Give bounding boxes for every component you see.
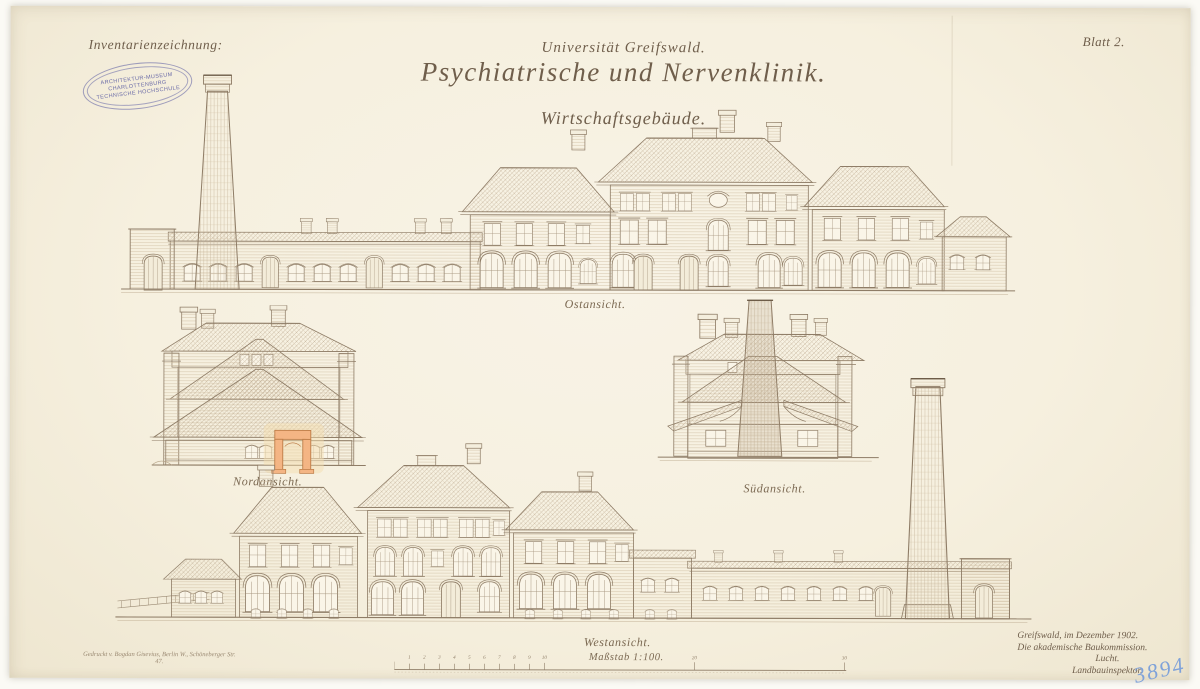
west-tall-chimney	[901, 379, 954, 619]
west-low-wing	[687, 550, 1011, 619]
west-center-block	[353, 443, 513, 617]
caption-ostansicht: Ostansicht.	[530, 297, 660, 312]
east-main-right-wing	[800, 166, 948, 290]
east-main-center-block	[594, 110, 816, 290]
west-right-block	[501, 472, 637, 619]
scale-bar: 1 2 3 4 5 6 7 8 9 10 20 30	[394, 656, 846, 677]
east-main-left-wing	[458, 130, 618, 290]
caption-westansicht: Westansicht.	[547, 635, 687, 650]
east-low-wing	[128, 218, 482, 291]
sheet-number-label: Blatt 2.	[1083, 34, 1173, 50]
commission-line: Die akademische Baukommission.	[1017, 642, 1197, 654]
east-boiler-chimney	[195, 75, 239, 289]
drawing-sheet: Inventarienzeichnung: Blatt 2. ARCHITEKT…	[9, 6, 1190, 680]
west-left-block	[229, 465, 365, 618]
west-elevation-drawing	[111, 365, 1042, 629]
place-date: Greifswald, im Dezember 1902.	[1017, 631, 1197, 643]
east-right-annex	[934, 217, 1012, 291]
east-elevation-drawing	[118, 35, 1019, 299]
west-link-block	[629, 550, 695, 619]
printer-imprint: Gedruckt v. Bogdan Gisevius, Berlin W., …	[79, 651, 239, 665]
printer-line: 47.	[79, 658, 239, 665]
west-annex	[163, 559, 241, 617]
